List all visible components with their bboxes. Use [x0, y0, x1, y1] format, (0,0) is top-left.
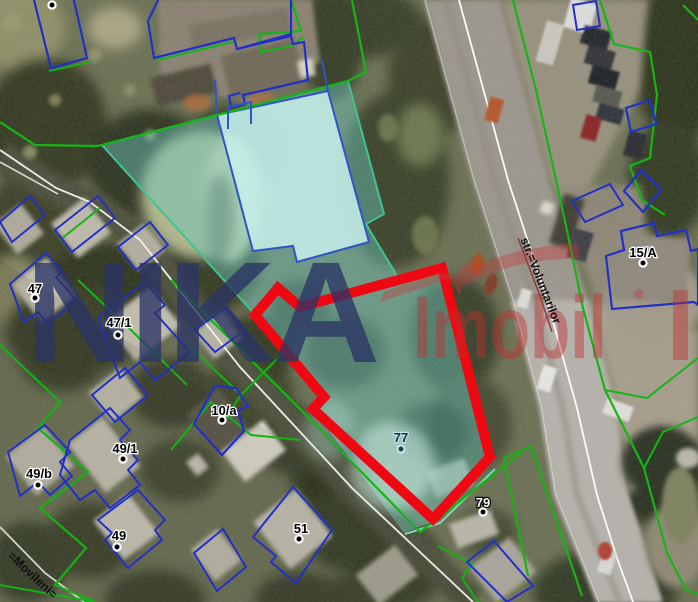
svg-text:49: 49	[112, 528, 126, 543]
svg-text:47/1: 47/1	[106, 315, 131, 330]
svg-text:15/A: 15/A	[629, 245, 657, 260]
svg-text:49/b: 49/b	[26, 466, 52, 481]
svg-text:Imobil: Imobil	[413, 277, 607, 377]
svg-text:51: 51	[294, 521, 308, 536]
svg-text:49/1: 49/1	[112, 441, 137, 456]
svg-text:NIKA: NIKA	[25, 233, 377, 393]
svg-text:10/a: 10/a	[211, 403, 237, 418]
svg-text:77: 77	[394, 430, 408, 445]
